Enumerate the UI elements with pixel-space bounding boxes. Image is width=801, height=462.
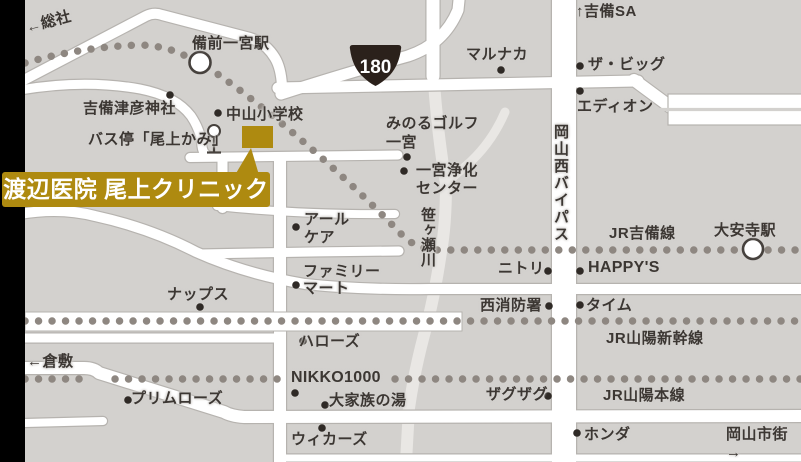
label-nishi-fire-station: 西消防署 bbox=[480, 297, 542, 315]
label-marunaka: マルナカ bbox=[466, 46, 528, 64]
label-edion: エディオン bbox=[577, 98, 653, 116]
label-honda: ホンダ bbox=[584, 426, 631, 444]
label-time: タイム bbox=[586, 297, 632, 315]
poi-dot-the-big bbox=[576, 62, 584, 70]
label-kibi-sa-direction: ↑吉備SA bbox=[576, 3, 637, 21]
label-jr-sanyo-shinkansen: JR山陽新幹線 bbox=[606, 330, 704, 348]
poi-dot-r-care bbox=[292, 223, 300, 231]
label-wickers: ウィカーズ bbox=[291, 431, 368, 449]
poi-dot-nakayama-school bbox=[214, 109, 222, 117]
label-happys: HAPPY'S bbox=[588, 259, 660, 277]
daianji-station-icon bbox=[743, 239, 763, 259]
access-map: 180 ←総社 備前一宮駅 ↑吉備SA マルナカ ザ・ビッグ エディオン 吉備津… bbox=[0, 0, 801, 462]
label-r-care: アール ケア bbox=[304, 211, 350, 247]
label-okayama-city-direction: 岡山市街→ bbox=[726, 426, 801, 462]
label-daikazoku-no-yu: 大家族の湯 bbox=[329, 392, 407, 410]
poi-dot-honda bbox=[573, 429, 581, 437]
map-left-margin bbox=[0, 0, 25, 462]
label-halows: ハローズ bbox=[299, 333, 360, 351]
label-naps: ナップス bbox=[167, 286, 229, 304]
label-zagzag: ザグザグ bbox=[486, 386, 548, 404]
label-nakayama-school: 中山小学校 bbox=[226, 106, 304, 124]
label-the-big: ザ・ビッグ bbox=[588, 56, 666, 74]
poi-dot-happys bbox=[576, 267, 584, 275]
label-daianji-station: 大安寺駅 bbox=[714, 222, 776, 240]
label-sasagase-river: 笹ヶ瀬川 bbox=[419, 207, 435, 267]
label-minoru-golf: みのるゴルフ 一宮 bbox=[386, 114, 479, 152]
label-nitori: ニトリ bbox=[498, 260, 545, 278]
poi-dot-nitori bbox=[544, 267, 552, 275]
clinic-marker bbox=[242, 126, 273, 148]
label-primrose: プリムローズ bbox=[131, 390, 223, 408]
label-jr-sanyo-main-line: JR山陽本線 bbox=[603, 387, 685, 405]
label-family-mart: ファミリー マート bbox=[303, 263, 381, 297]
poi-dot-edion bbox=[576, 87, 584, 95]
label-jr-kibi-line: JR吉備線 bbox=[609, 225, 676, 243]
poi-dot-daikazoku-no-yu bbox=[321, 401, 329, 409]
label-nikko1000: NIKKO1000 bbox=[291, 369, 381, 387]
label-bizen-ichinomiya-station: 備前一宮駅 bbox=[192, 35, 270, 53]
poi-dot-time bbox=[576, 301, 584, 309]
label-kurashiki-direction: ←倉敷 bbox=[27, 353, 74, 371]
poi-dot-kibitsuhiko-shrine bbox=[166, 91, 174, 99]
poi-dot-naps bbox=[196, 303, 204, 311]
poi-dot-marunaka bbox=[497, 66, 505, 74]
route-180-number: 180 bbox=[360, 57, 392, 78]
poi-dot-nikko1000 bbox=[291, 389, 299, 397]
label-kibitsuhiko-shrine: 吉備津彦神社 bbox=[83, 100, 176, 118]
poi-dot-nishi-fire-station bbox=[545, 302, 553, 310]
label-bus-stop-onoue-kami: バス停「尾上かみ」 bbox=[88, 131, 228, 149]
poi-dot-family-mart bbox=[292, 281, 300, 289]
poi-dot-jokacenter bbox=[400, 167, 408, 175]
label-okayama-nishi-bypass: 岡山西バイパス bbox=[552, 124, 568, 243]
label-ichinomiya-jokacenter: 一宮浄化 センター bbox=[416, 162, 478, 198]
bizen-ichinomiya-station-icon bbox=[190, 52, 211, 73]
clinic-name-badge: 渡辺医院 尾上クリニック bbox=[2, 172, 270, 207]
poi-dot-minoru-golf bbox=[403, 153, 411, 161]
